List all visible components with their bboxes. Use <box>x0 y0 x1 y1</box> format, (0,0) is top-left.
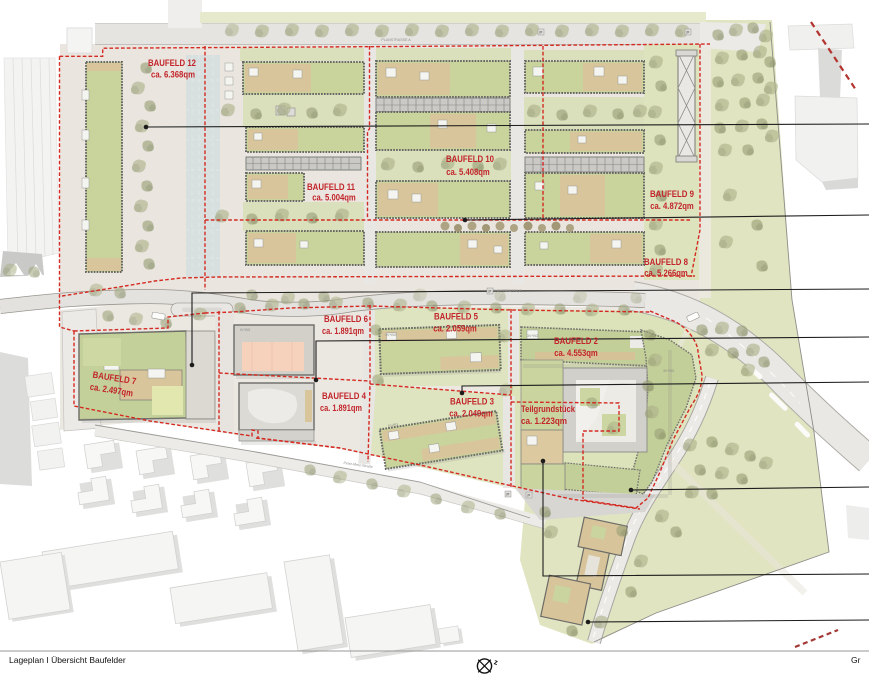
svg-text:ca. 1.891qm: ca. 1.891qm <box>320 403 362 413</box>
svg-text:BAUFELD 6: BAUFELD 6 <box>324 314 368 324</box>
svg-text:3V+BG: 3V+BG <box>663 369 675 373</box>
svg-text:ca. 1.891qm: ca. 1.891qm <box>322 326 364 336</box>
svg-text:ca. 2.059qm: ca. 2.059qm <box>433 324 477 334</box>
svg-text:ca. 2.049qm: ca. 2.049qm <box>449 409 493 419</box>
svg-text:ca. 5.408qm: ca. 5.408qm <box>446 167 490 177</box>
svg-text:BAUFELD 4: BAUFELD 4 <box>322 391 367 401</box>
svg-text:IV+BG: IV+BG <box>240 328 251 332</box>
svg-text:P: P <box>488 289 491 294</box>
svg-text:ca. 1.223qm: ca. 1.223qm <box>521 416 567 426</box>
svg-text:ca. 5.266qm: ca. 5.266qm <box>644 268 688 278</box>
svg-text:BAUFELD 8: BAUFELD 8 <box>644 257 688 267</box>
svg-text:ca. 5.004qm: ca. 5.004qm <box>312 193 356 203</box>
svg-text:PLANSTRASSE A: PLANSTRASSE A <box>381 38 411 42</box>
svg-text:ca. 4.872qm: ca. 4.872qm <box>650 201 694 211</box>
svg-text:P: P <box>539 30 542 35</box>
svg-text:P: P <box>686 30 689 35</box>
svg-text:P: P <box>506 492 509 497</box>
svg-text:ca. 6.368qm: ca. 6.368qm <box>151 70 195 80</box>
svg-text:BAUFELD 3: BAUFELD 3 <box>450 397 494 407</box>
svg-text:BAUFELD 2: BAUFELD 2 <box>554 336 598 346</box>
svg-text:Teilgrundstück: Teilgrundstück <box>521 404 576 414</box>
svg-text:Gr: Gr <box>851 655 861 665</box>
svg-text:PLANSTRASSE B: PLANSTRASSE B <box>492 289 522 293</box>
svg-text:P: P <box>527 493 530 498</box>
svg-text:Lageplan I Übersicht Baufelder: Lageplan I Übersicht Baufelder <box>9 655 126 665</box>
svg-text:3V+BG: 3V+BG <box>527 334 539 338</box>
svg-text:BAUFELD 9: BAUFELD 9 <box>650 189 694 199</box>
svg-text:3V+BG: 3V+BG <box>385 333 397 337</box>
svg-text:BAUFELD 10: BAUFELD 10 <box>446 154 494 164</box>
svg-text:BAUFELD 5: BAUFELD 5 <box>434 312 478 322</box>
svg-text:BAUFELD 11: BAUFELD 11 <box>307 182 355 192</box>
svg-text:ca. 4.553qm: ca. 4.553qm <box>554 348 598 358</box>
svg-text:BAUFELD 12: BAUFELD 12 <box>148 58 196 68</box>
